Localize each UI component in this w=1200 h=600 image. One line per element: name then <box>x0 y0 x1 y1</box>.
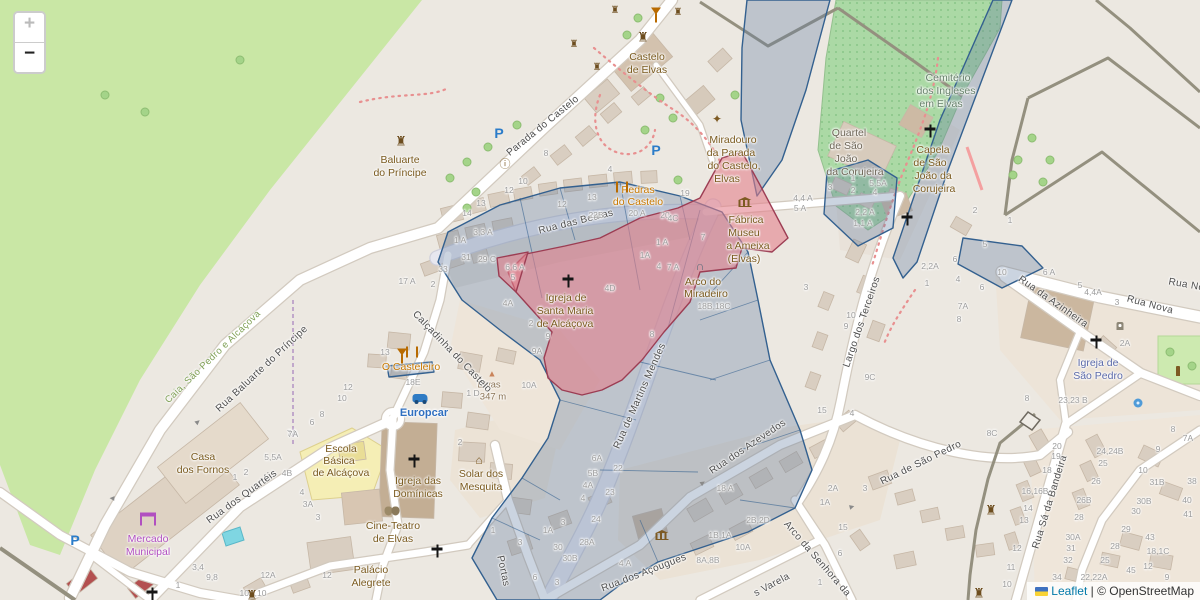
tree-icon <box>623 31 631 39</box>
tree-icon <box>641 126 649 134</box>
building <box>387 332 411 350</box>
attribution-separator: | <box>1091 584 1094 598</box>
tree-icon <box>731 91 739 99</box>
tree-icon <box>446 174 454 182</box>
tree-icon <box>463 158 471 166</box>
osm-copyright: © OpenStreetMap <box>1097 584 1194 598</box>
tree-icon <box>1046 156 1054 164</box>
leaflet-map[interactable]: Castelode ElvasBaluartedo PríncipeMirado… <box>0 0 1200 600</box>
tree-icon <box>513 121 521 129</box>
zoom-in-button[interactable]: + <box>15 13 44 43</box>
tree-icon <box>1009 171 1017 179</box>
building <box>368 354 387 368</box>
tree-icon <box>669 114 677 122</box>
tree-icon <box>472 188 480 196</box>
tree-icon <box>101 91 109 99</box>
leaflet-link[interactable]: Leaflet <box>1051 584 1087 598</box>
tree-icon <box>634 14 642 22</box>
tree-icon <box>1039 178 1047 186</box>
building <box>441 392 462 409</box>
building <box>341 489 382 525</box>
tree-icon <box>1014 156 1022 164</box>
tree-icon <box>236 56 244 64</box>
building <box>459 442 486 462</box>
map-canvas[interactable]: Castelode ElvasBaluartedo PríncipeMirado… <box>0 0 1200 600</box>
building <box>466 412 490 430</box>
building <box>975 543 994 557</box>
ukraine-flag-icon <box>1035 587 1048 596</box>
tree-icon <box>674 176 682 184</box>
building <box>945 526 965 541</box>
zoom-control: + − <box>13 11 46 74</box>
attribution-bar: Leaflet | © OpenStreetMap <box>1027 582 1200 600</box>
tree-icon <box>484 143 492 151</box>
tree-icon <box>463 204 471 212</box>
building <box>458 352 483 373</box>
tree-icon <box>1028 134 1036 142</box>
tree-icon <box>1188 362 1196 370</box>
map-svg <box>0 0 1200 600</box>
building <box>641 171 658 184</box>
tree-icon <box>1166 348 1174 356</box>
zoom-out-button[interactable]: − <box>15 43 44 72</box>
tree-icon <box>141 108 149 116</box>
